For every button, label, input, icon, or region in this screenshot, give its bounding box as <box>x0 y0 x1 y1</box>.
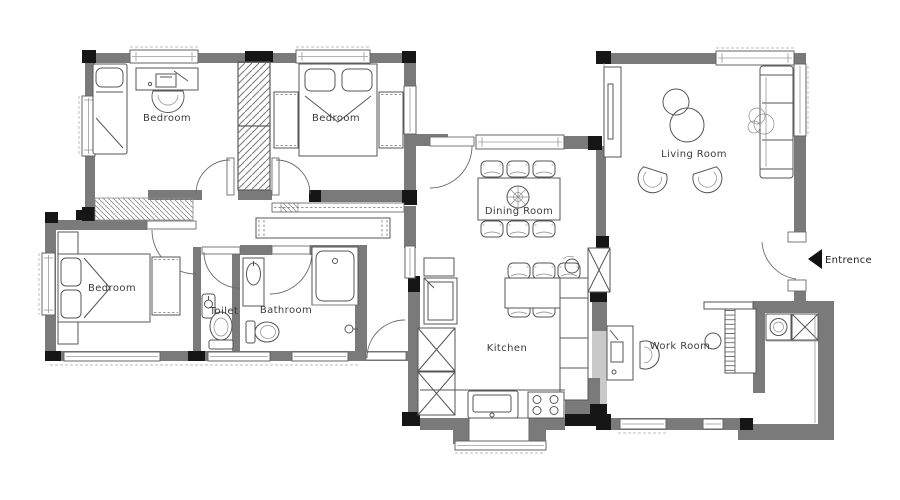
window <box>296 50 370 63</box>
room-living: Living Room <box>604 63 793 197</box>
entrance-label: Entrence <box>825 255 872 266</box>
shower-icon <box>312 305 358 333</box>
room-label: Bedroom <box>143 113 191 124</box>
room-label: Toilet <box>209 306 239 317</box>
nightstand-icon <box>379 92 403 148</box>
room-label: Bedroom <box>312 113 360 124</box>
shelf-icon <box>704 302 753 309</box>
bathtub-icon <box>312 247 358 305</box>
room-label: Kitchen <box>487 343 527 354</box>
room-label: Bathroom <box>260 305 312 316</box>
dresser-icon <box>152 257 180 315</box>
window <box>42 253 55 315</box>
window <box>404 86 416 134</box>
entrance-arrow-icon <box>808 249 822 269</box>
nightstand-icon <box>58 232 78 254</box>
toilet-icon <box>209 312 233 349</box>
armchair-icon <box>691 166 726 196</box>
room-label: Bedroom <box>88 283 136 294</box>
window <box>476 135 564 149</box>
fridge-icon <box>424 278 457 324</box>
kitchen-island-icon <box>505 278 561 308</box>
room-label: Dining Room <box>485 206 553 217</box>
lazy-susan-icon <box>507 186 529 208</box>
room-bedroom-bottom-left: Bedroom <box>58 232 180 344</box>
pantry-cabinet-icon <box>418 328 455 371</box>
window <box>130 50 198 63</box>
nightstand-icon <box>274 92 298 148</box>
toilet-icon <box>246 321 279 343</box>
window <box>703 419 723 429</box>
window <box>405 246 415 278</box>
armchair-icon <box>634 166 669 196</box>
door-arc <box>366 320 406 360</box>
door-arc <box>270 246 312 294</box>
coffee-table-icon <box>663 89 704 142</box>
storage-cabinet-icon <box>588 248 610 292</box>
room-bathroom: Bathroom <box>243 247 358 343</box>
double-bed-icon <box>299 64 377 156</box>
sofa-icon <box>760 66 793 178</box>
door-arc <box>196 158 234 195</box>
pantry-cabinet-icon <box>418 372 455 415</box>
window <box>292 352 348 361</box>
single-bed-icon <box>93 64 127 154</box>
room-dining: Dining Room <box>478 161 560 237</box>
floor-plan-canvas: Bedroom Bedroom Bedroom Toilet Bathroom <box>0 0 900 500</box>
room-label: Work Room <box>650 341 711 352</box>
room-utility <box>766 314 818 423</box>
work-desk-icon <box>607 326 633 380</box>
wardrobe-icon <box>238 62 270 190</box>
room-kitchen: Kitchen <box>418 248 610 418</box>
stove-icon <box>528 392 564 418</box>
door-arc <box>430 137 474 188</box>
window <box>794 64 806 136</box>
door-arc <box>272 158 310 195</box>
counter-icon <box>560 278 588 400</box>
cabinet-icon <box>424 258 454 276</box>
hall-console-icon <box>256 218 390 238</box>
piano-icon <box>725 309 756 373</box>
sliding-door <box>272 203 404 212</box>
room-bedroom-top-middle: Bedroom <box>274 64 403 156</box>
window <box>208 352 270 361</box>
entrance-door-arc <box>762 232 806 291</box>
desk-icon <box>136 68 198 90</box>
vanity-sink-icon <box>243 258 264 306</box>
room-work: Work Room <box>607 302 756 380</box>
window <box>716 51 794 65</box>
storage-cabinet-icon <box>792 314 818 340</box>
window <box>64 352 160 361</box>
room-label: Living Room <box>661 149 727 160</box>
office-chair-icon <box>152 91 184 113</box>
kitchen-sink-icon <box>468 391 518 418</box>
nightstand-icon <box>58 322 78 344</box>
closet-icon <box>95 198 193 220</box>
entrance-marker: Entrence <box>808 249 872 269</box>
window <box>620 419 666 429</box>
washing-machine-icon <box>766 314 791 340</box>
tv-console-icon <box>604 67 621 157</box>
